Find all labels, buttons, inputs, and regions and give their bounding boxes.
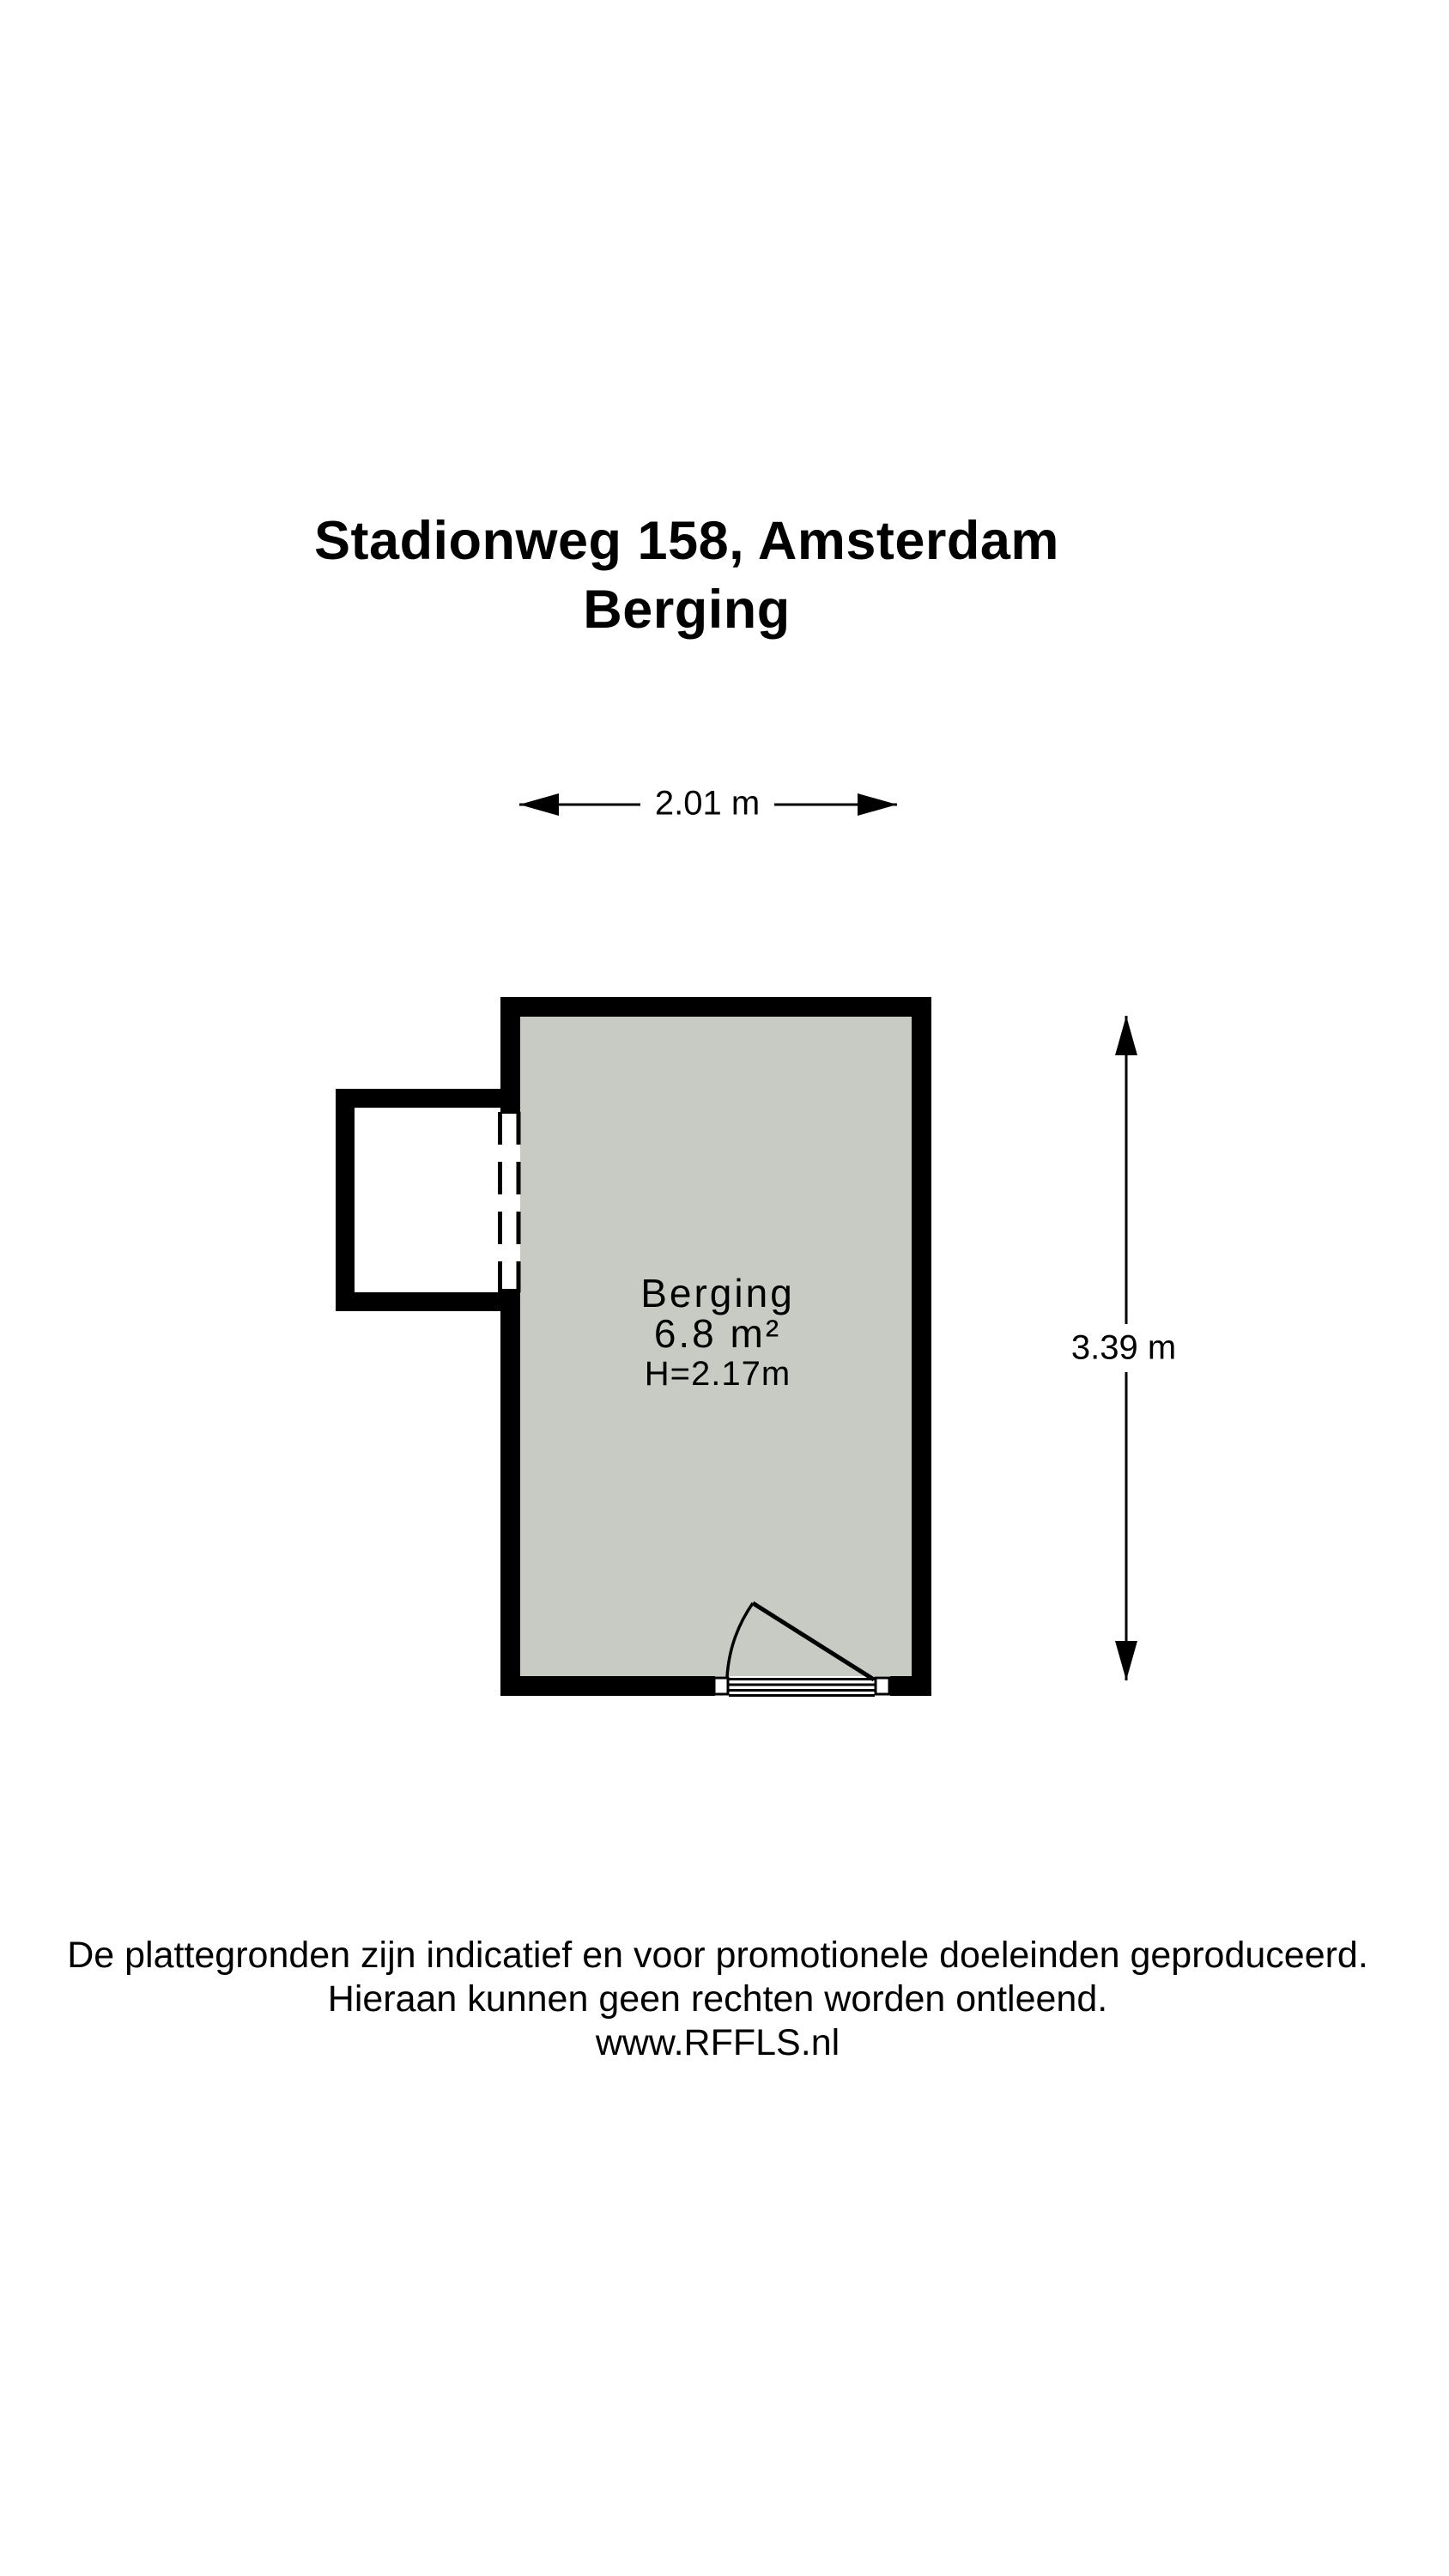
ceiling-height-label: H=2.17m (546, 1354, 889, 1394)
wall-bottom-left (500, 1676, 715, 1696)
floorplan-page: Stadionweg 158, Amsterdam Berging (0, 0, 1449, 2576)
alcove-wall-top (336, 1089, 500, 1108)
wall-right (912, 997, 931, 1696)
dim-height-label: 3.39 m (1061, 1327, 1186, 1370)
disclaimer-line-2: Hieraan kunnen geen rechten worden ontle… (0, 1978, 1435, 2021)
dim-width-label: 2.01 m (645, 783, 770, 825)
footer-disclaimer: De plattegronden zijn indicatief en voor… (0, 1934, 1435, 2065)
disclaimer-line-1: De plattegronden zijn indicatief en voor… (0, 1934, 1435, 1978)
wall-left-lower (500, 1289, 520, 1696)
room-area-label: 6.8 m² (546, 1314, 889, 1354)
room-label-block: Berging 6.8 m² H=2.17m (546, 1273, 889, 1394)
wall-bottom-right (890, 1676, 931, 1696)
dim-width-arrowhead-right (858, 793, 897, 816)
alcove-wall-bottom (336, 1292, 519, 1311)
website-text: www.RFFLS.nl (0, 2021, 1435, 2065)
dim-height-arrowhead-top (1115, 1016, 1137, 1055)
wall-left-upper (500, 997, 520, 1114)
alcove-wall-left (336, 1089, 355, 1311)
room-name-label: Berging (546, 1273, 889, 1314)
door-jamb-right (876, 1678, 889, 1694)
door-jamb-left (714, 1678, 728, 1694)
dim-height-arrowhead-bottom (1115, 1641, 1137, 1680)
dim-width-arrowhead-left (519, 793, 559, 816)
wall-top (500, 997, 931, 1017)
